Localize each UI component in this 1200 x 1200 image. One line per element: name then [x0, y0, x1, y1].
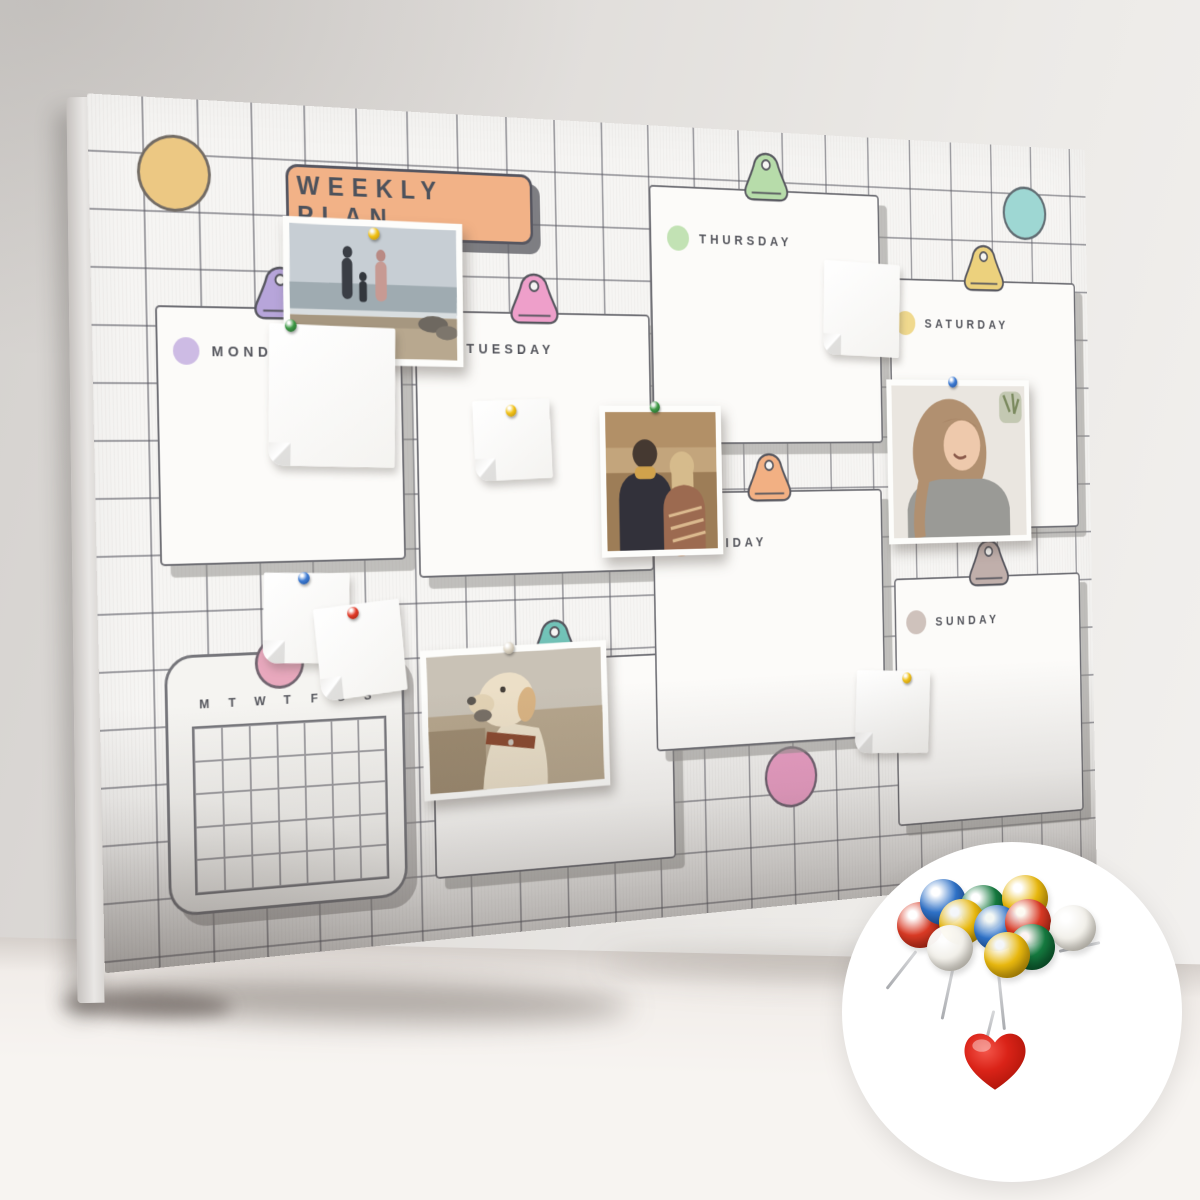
decor-dot-teal	[1002, 186, 1046, 241]
day-dot	[173, 337, 200, 365]
sticky-note-thursday	[823, 260, 900, 358]
clip-icon	[949, 242, 1018, 298]
weekday-letter: M	[190, 696, 218, 712]
clip-icon	[732, 451, 807, 508]
pin-needle	[997, 974, 1006, 1030]
day-label: SATURDAY	[924, 316, 1008, 332]
sticky-note-pair-right	[313, 598, 408, 702]
sticky-note-monday	[269, 323, 396, 468]
calendar-grid	[192, 716, 390, 896]
photo-smiling-woman	[886, 379, 1031, 544]
day-dot	[667, 225, 689, 251]
board-grid-surface: WEEKLY PLAN MONDAY	[87, 93, 1097, 973]
pushpin-yellow-icon	[984, 932, 1030, 978]
weekly-plan-board: WEEKLY PLAN MONDAY	[87, 93, 1097, 973]
heart-pin-icon	[958, 1028, 1032, 1094]
pin-needle	[941, 968, 955, 1019]
weekday-letter: T	[218, 694, 245, 710]
day-dot	[906, 610, 926, 635]
photo-couple-in-field	[599, 406, 723, 558]
weekday-letter: W	[246, 693, 273, 709]
decor-dot-pink-bottom	[764, 744, 817, 809]
day-label: TUESDAY	[466, 341, 554, 358]
day-label: SUNDAY	[935, 612, 999, 629]
clip-icon	[493, 271, 575, 332]
day-label: THURSDAY	[699, 231, 792, 249]
pushpin-detail-inset	[842, 842, 1182, 1182]
pushpin-white-icon	[1050, 905, 1096, 951]
pushpin-blue-icon	[948, 376, 957, 387]
clip-icon	[728, 149, 803, 209]
decor-dot-tan	[136, 133, 211, 213]
pushpin-yellow-icon	[505, 405, 516, 417]
photo-labrador-dog	[420, 640, 611, 802]
weekday-letter: T	[274, 692, 301, 708]
pushpin-white-icon	[927, 925, 973, 971]
pushpin-green-icon	[285, 319, 297, 332]
pushpin-yellow-icon	[368, 227, 380, 240]
pin-needle	[886, 950, 918, 990]
sticky-note-sunday	[855, 670, 930, 753]
clip-icon	[954, 538, 1023, 594]
pushpin-green-icon	[650, 401, 660, 413]
product-photo-scene: WEEKLY PLAN MONDAY	[0, 0, 1200, 1200]
